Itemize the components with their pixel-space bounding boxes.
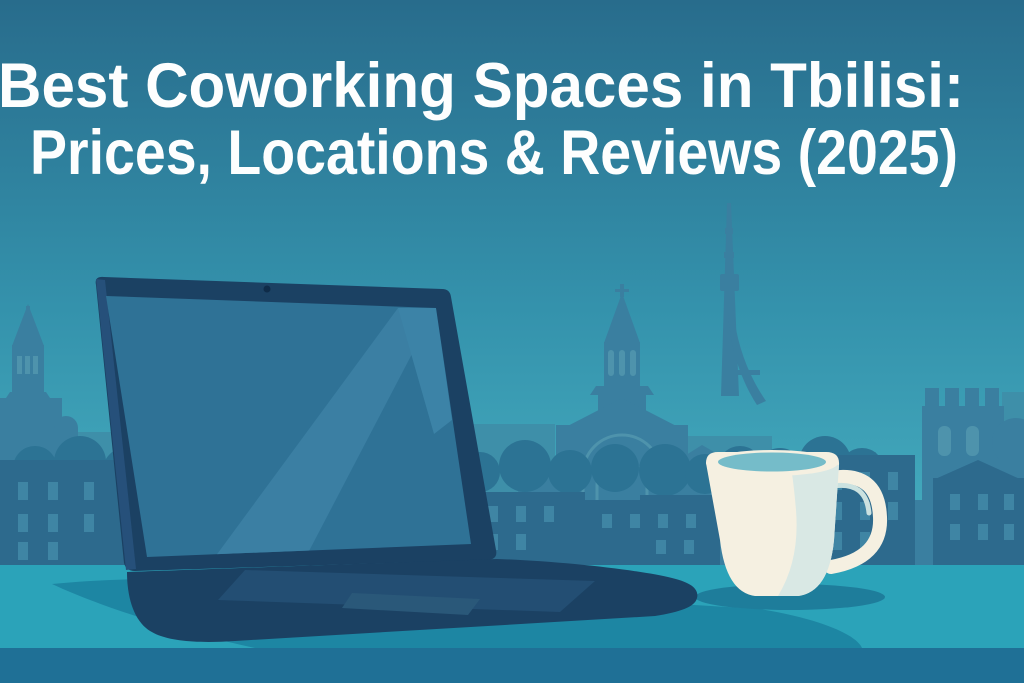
illustration-canvas: Best Coworking Spaces in Tbilisi: Prices…: [0, 0, 1024, 683]
title-line-2: Prices, Locations & Reviews (2025): [30, 118, 958, 188]
desk-front-edge: [0, 648, 1024, 683]
header-banner: Best Coworking Spaces in Tbilisi: Prices…: [0, 0, 1024, 683]
webcam-icon: [264, 286, 271, 293]
title-line-1: Best Coworking Spaces in Tbilisi:: [0, 51, 964, 121]
coffee-surface: [718, 453, 826, 472]
